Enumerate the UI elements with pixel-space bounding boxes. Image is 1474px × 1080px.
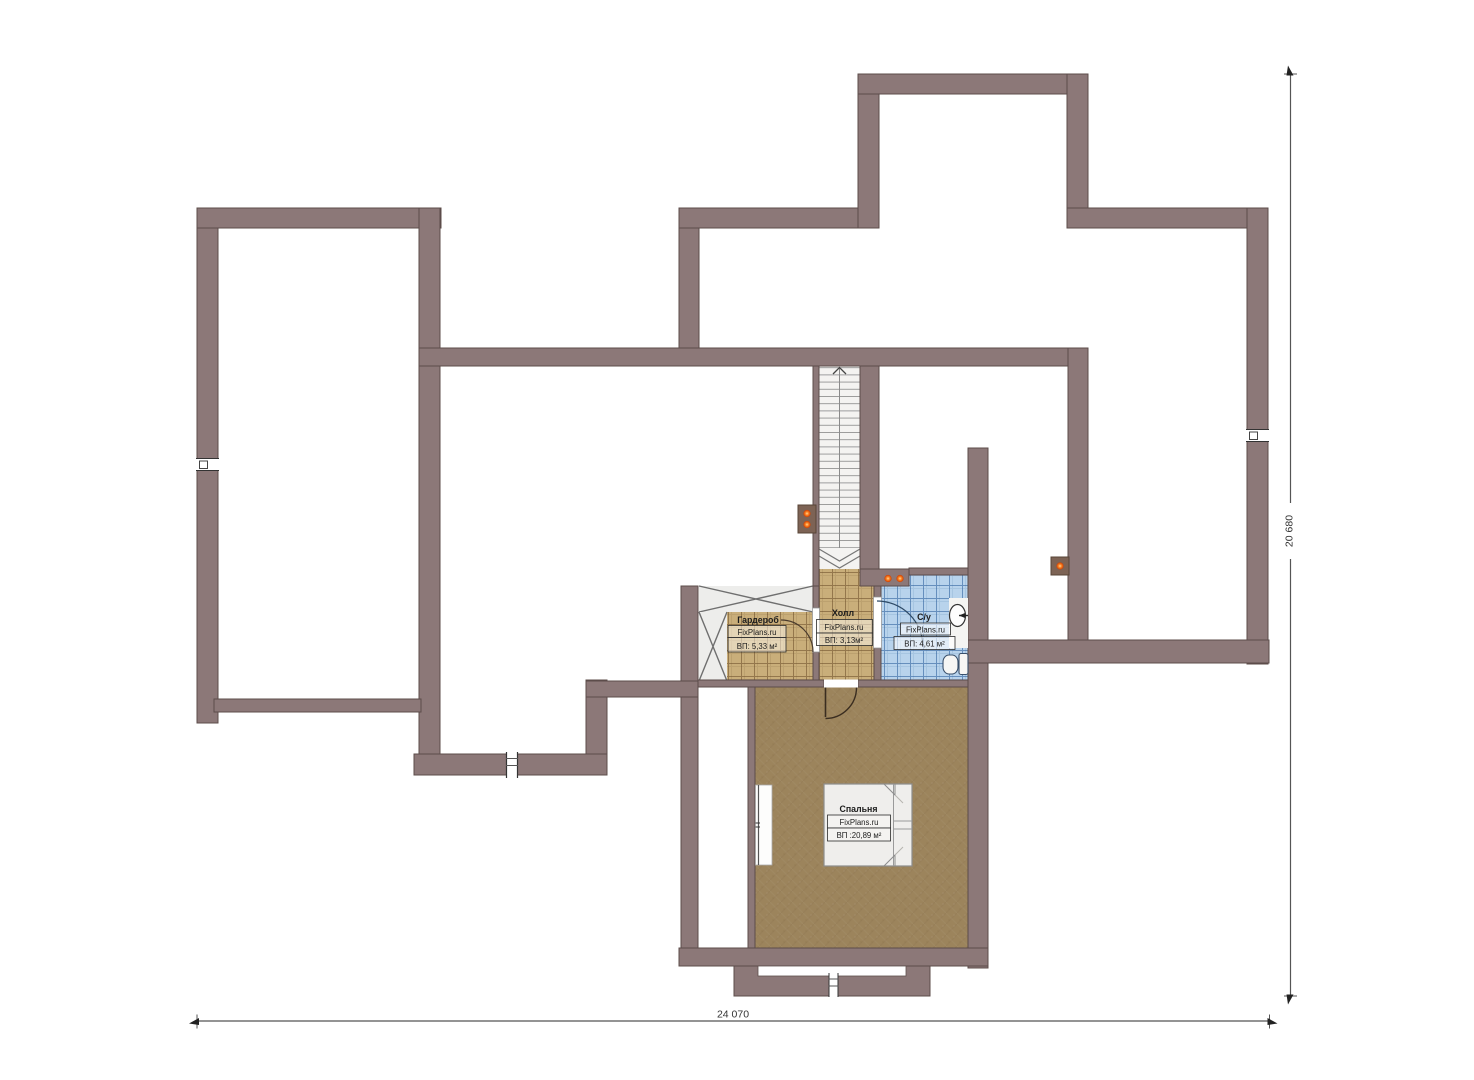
svg-text:Холл: Холл bbox=[832, 608, 854, 618]
svg-text:FixPlans.ru: FixPlans.ru bbox=[840, 818, 879, 827]
svg-text:ВП :20,89 м²: ВП :20,89 м² bbox=[837, 831, 882, 840]
svg-text:ВП: 5,33 м²: ВП: 5,33 м² bbox=[737, 642, 778, 651]
svg-text:Гардероб: Гардероб bbox=[737, 615, 779, 625]
svg-text:FixPlans.ru: FixPlans.ru bbox=[906, 626, 945, 635]
svg-text:С/у: С/у bbox=[917, 612, 931, 622]
svg-text:24 070: 24 070 bbox=[717, 1009, 749, 1021]
svg-text:ВП: 3,13м²: ВП: 3,13м² bbox=[825, 636, 864, 645]
svg-text:FixPlans.ru: FixPlans.ru bbox=[738, 628, 777, 637]
svg-text:20 680: 20 680 bbox=[1284, 515, 1296, 547]
svg-text:ВП: 4,61 м²: ВП: 4,61 м² bbox=[904, 640, 945, 649]
svg-text:FixPlans.ru: FixPlans.ru bbox=[825, 623, 864, 632]
svg-text:Спальня: Спальня bbox=[839, 804, 877, 814]
